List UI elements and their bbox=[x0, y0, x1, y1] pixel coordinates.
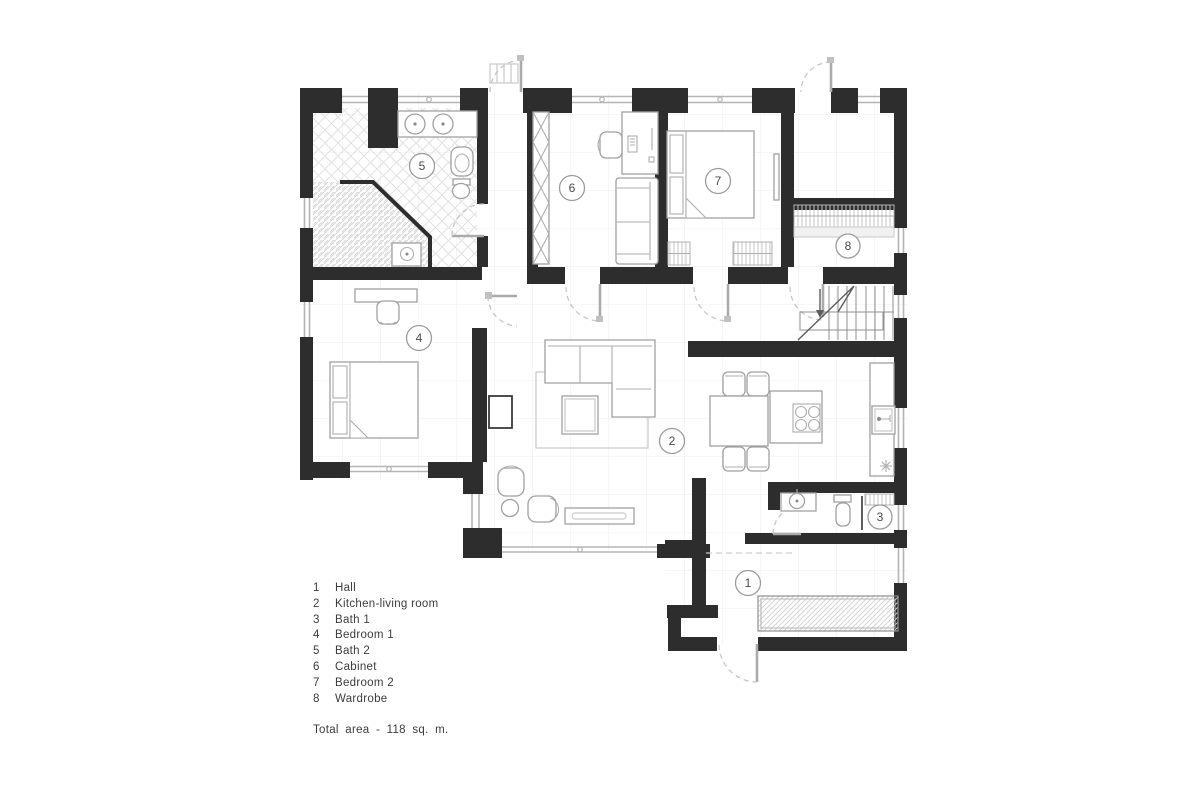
svg-text:5: 5 bbox=[419, 159, 426, 173]
room-number-4: 4 bbox=[407, 326, 432, 351]
legend-row: 7 Bedroom 2 bbox=[313, 676, 543, 692]
legend-number: 1 bbox=[313, 581, 335, 597]
chair-icon bbox=[600, 132, 622, 158]
floor-plan-page: 1 2 3 4 5 6 7 8 1 bbox=[0, 0, 1200, 800]
svg-text:3: 3 bbox=[877, 510, 884, 524]
legend-number: 3 bbox=[313, 613, 335, 629]
coffee-table-icon bbox=[562, 396, 598, 434]
legend: 1 Hall 2 Kitchen-living room 3 Bath 1 4 … bbox=[313, 581, 543, 707]
legend-row: 2 Kitchen-living room bbox=[313, 597, 543, 613]
legend-label: Bedroom 2 bbox=[335, 676, 394, 692]
room-number-3: 3 bbox=[868, 505, 892, 529]
room-number-6: 6 bbox=[560, 176, 585, 201]
svg-text:6: 6 bbox=[569, 181, 576, 195]
toilet-icon bbox=[834, 495, 851, 502]
legend-row: 1 Hall bbox=[313, 581, 543, 597]
room-number-1: 1 bbox=[736, 571, 761, 596]
svg-text:1: 1 bbox=[745, 576, 752, 590]
desk-icon bbox=[355, 289, 417, 302]
chair-icon bbox=[377, 301, 399, 324]
legend-row: 8 Wardrobe bbox=[313, 692, 543, 708]
legend-label: Cabinet bbox=[335, 660, 377, 676]
legend-row: 5 Bath 2 bbox=[313, 644, 543, 660]
svg-text:2: 2 bbox=[669, 434, 676, 448]
legend-row: 3 Bath 1 bbox=[313, 613, 543, 629]
room-number-7: 7 bbox=[706, 169, 731, 194]
legend-label: Bath 2 bbox=[335, 644, 370, 660]
legend-label: Kitchen-living room bbox=[335, 597, 439, 613]
legend-number: 5 bbox=[313, 644, 335, 660]
room-number-5: 5 bbox=[410, 154, 435, 179]
dining-table-icon bbox=[710, 396, 768, 446]
side-table-icon bbox=[502, 500, 519, 517]
desk-icon bbox=[622, 112, 658, 174]
tv-console-icon bbox=[565, 508, 634, 524]
shelf-icon bbox=[865, 494, 894, 505]
svg-text:4: 4 bbox=[416, 331, 423, 345]
sofa-icon bbox=[616, 178, 658, 264]
wardrobe-shelving bbox=[794, 205, 894, 237]
floor-plan-drawing: 1 2 3 4 5 6 7 8 bbox=[0, 0, 1200, 800]
legend-label: Bedroom 1 bbox=[335, 628, 394, 644]
svg-text:7: 7 bbox=[715, 174, 722, 188]
armchair-icon bbox=[528, 496, 556, 522]
legend-label: Hall bbox=[335, 581, 356, 597]
bed-icon bbox=[330, 362, 418, 438]
legend-number: 7 bbox=[313, 676, 335, 692]
legend-number: 6 bbox=[313, 660, 335, 676]
room-number-2: 2 bbox=[660, 429, 685, 454]
room-number-8: 8 bbox=[836, 234, 860, 258]
legend-row: 6 Cabinet bbox=[313, 660, 543, 676]
legend-number: 2 bbox=[313, 597, 335, 613]
closet-icon bbox=[758, 596, 898, 631]
legend-label: Wardrobe bbox=[335, 692, 387, 708]
hall-closet bbox=[758, 596, 898, 631]
total-area-label: Total area - 118 sq. m. bbox=[313, 724, 448, 736]
tv-unit-icon bbox=[489, 396, 512, 428]
radiator-icon bbox=[774, 154, 779, 200]
legend-row: 4 Bedroom 1 bbox=[313, 628, 543, 644]
legend-label: Bath 1 bbox=[335, 613, 370, 629]
svg-text:8: 8 bbox=[845, 239, 852, 253]
legend-number: 4 bbox=[313, 628, 335, 644]
legend-number: 8 bbox=[313, 692, 335, 708]
armchair-icon bbox=[498, 468, 524, 496]
